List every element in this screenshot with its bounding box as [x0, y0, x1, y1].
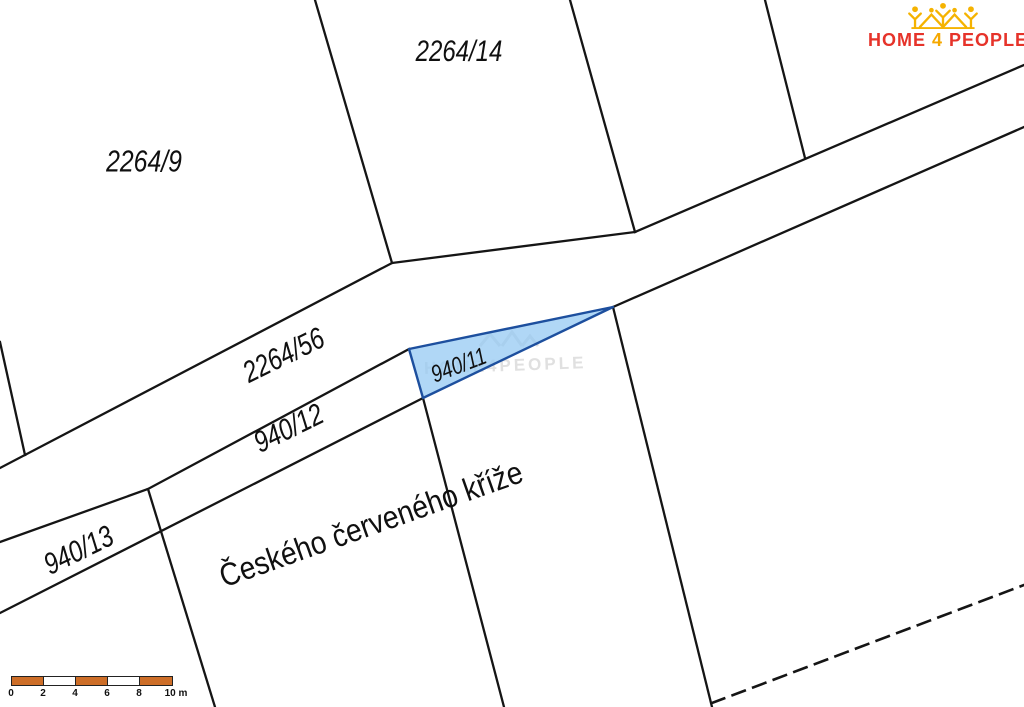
- boundary-line: [0, 398, 423, 613]
- brand-name: HOME 4 PEOPLE: [868, 30, 1018, 51]
- boundary-line: [0, 263, 392, 468]
- scale-segment: [76, 677, 108, 685]
- boundary-line: [423, 398, 504, 707]
- scale-bar-ticks: 0 2 4 6 8 10 m: [11, 688, 173, 700]
- scale-tick: 0: [8, 688, 14, 699]
- scale-tick: 4: [72, 688, 78, 699]
- boundary-line-dashed: [712, 585, 1024, 703]
- scale-tick: 2: [40, 688, 46, 699]
- scale-segment: [140, 677, 172, 685]
- cadastral-map: HOME4PEOPLE 2264/9 2264/14: [0, 0, 1024, 707]
- crown-icon: [904, 2, 982, 29]
- scale-tick: 6: [104, 688, 110, 699]
- scale-tick: 8: [136, 688, 142, 699]
- parcel-label-2264-9: 2264/9: [106, 146, 182, 177]
- brand-logo: HOME 4 PEOPLE: [868, 2, 1018, 51]
- boundary-line: [0, 342, 25, 455]
- boundary-line: [613, 307, 712, 707]
- scale-tick: 10 m: [165, 688, 188, 699]
- road-edge-line: [635, 65, 1024, 232]
- parcel-label-2264-14: 2264/14: [416, 37, 503, 67]
- boundary-line: [570, 0, 635, 232]
- scale-segment: [44, 677, 76, 685]
- parcel-boundaries-layer: [0, 0, 1024, 707]
- scale-bar-segments: [11, 676, 173, 686]
- brand-word2: PEOPLE: [949, 30, 1024, 50]
- brand-word1: HOME: [868, 30, 926, 50]
- scale-segment: [12, 677, 44, 685]
- scale-segment: [108, 677, 140, 685]
- scale-bar: 0 2 4 6 8 10 m: [11, 676, 173, 700]
- boundary-line: [392, 232, 635, 263]
- boundary-line: [315, 0, 392, 263]
- brand-number: 4: [932, 30, 943, 50]
- boundary-line: [765, 0, 805, 158]
